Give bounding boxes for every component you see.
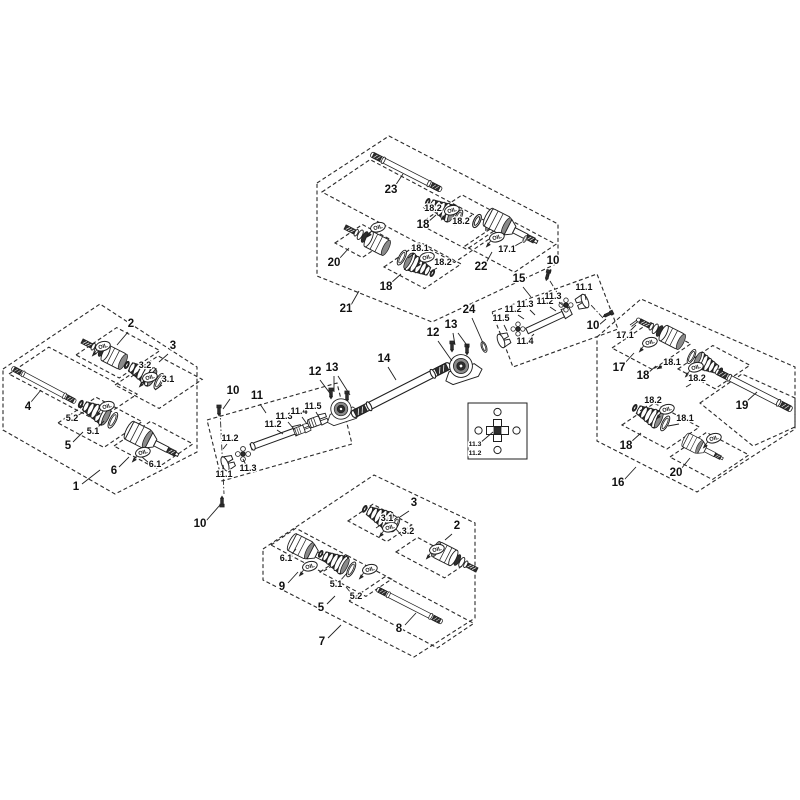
part-label-20-31: 20 xyxy=(670,467,683,479)
leader-line-6 xyxy=(119,457,129,467)
bolt-10-front-bottom xyxy=(220,496,224,507)
axle-shaft-4 xyxy=(11,365,78,404)
leader-line-14 xyxy=(388,367,396,380)
leader-line-11.2 xyxy=(223,444,227,449)
snap-ring-24 xyxy=(480,341,489,353)
leader-line-18 xyxy=(631,433,641,442)
part-label-20-15: 20 xyxy=(328,257,341,269)
part-label-12-57: 12 xyxy=(427,327,440,339)
part-label-5.1-39: 5.1 xyxy=(330,579,343,589)
part-label-18.2-17: 18.2 xyxy=(434,257,452,267)
part-label-17.1-22: 17.1 xyxy=(616,330,634,340)
part-label-6-5: 6 xyxy=(111,465,117,477)
bolt-10-rear-right xyxy=(602,310,614,318)
part-label-5.2-8: 5.2 xyxy=(66,413,79,423)
drivetrain-parts-diagram: OILOILOILOILOILOILOILOILOILOILOILOILOILO… xyxy=(0,0,800,800)
part-label-14-56: 14 xyxy=(378,353,391,365)
leader-line-11.5 xyxy=(504,325,507,331)
part-label-8-42: 8 xyxy=(396,623,403,635)
part-label-11.2-71: 11.2 xyxy=(469,450,482,457)
part-label-22-20: 22 xyxy=(475,261,488,273)
part-label-11.2-51: 11.2 xyxy=(221,433,238,443)
part-label-18.1-24: 18.1 xyxy=(663,357,681,367)
part-label-11.5-63: 11.5 xyxy=(492,313,509,323)
leader-line-11 xyxy=(260,404,266,413)
boot-ring-18-2 xyxy=(471,213,483,229)
leader-line-10 xyxy=(206,505,220,521)
part-label-13-55: 13 xyxy=(326,362,339,374)
leader-line-18.2 xyxy=(686,384,691,387)
part-label-10-45: 10 xyxy=(194,518,207,530)
part-label-9-38: 9 xyxy=(279,581,285,593)
part-label-3-2: 3 xyxy=(170,340,176,352)
part-label-18.2-12: 18.2 xyxy=(424,203,442,213)
part-label-3.1-7: 3.1 xyxy=(162,374,175,384)
part-label-3.2-35: 3.2 xyxy=(402,526,415,536)
bolt-13-b1 xyxy=(450,341,454,352)
part-label-3.1-34: 3.1 xyxy=(381,513,394,523)
oil-grease-icon-8: OIL xyxy=(637,336,659,352)
part-label-18-18: 18 xyxy=(380,281,393,293)
leader-line-18.1 xyxy=(668,424,679,426)
axle-shaft-19 xyxy=(714,368,793,413)
part-label-16-32: 16 xyxy=(612,477,625,489)
part-label-21-19: 21 xyxy=(340,303,353,315)
part-label-11-46: 11 xyxy=(251,390,264,402)
leader-line-5 xyxy=(327,596,335,604)
flange-yoke-11-5-rear xyxy=(496,331,512,349)
part-label-15-60: 15 xyxy=(513,273,526,285)
parts xyxy=(11,151,794,625)
leader-line-7 xyxy=(328,625,341,638)
part-label-11.1-69: 11.1 xyxy=(575,282,592,292)
part-label-5.2-40: 5.2 xyxy=(350,591,363,601)
part-label-18.2-28: 18.2 xyxy=(644,395,662,405)
part-label-18.2-26: 18.2 xyxy=(688,373,706,383)
leader-line-15 xyxy=(523,287,531,297)
part-label-11.5-50: 11.5 xyxy=(304,401,321,411)
part-label-12-54: 12 xyxy=(309,366,322,378)
leader-line-10 xyxy=(223,399,230,409)
leader-line-20 xyxy=(339,248,349,259)
assembly-axis-line-2 xyxy=(591,305,603,318)
part-label-24-59: 24 xyxy=(463,304,476,316)
part-label-23-11: 23 xyxy=(385,184,398,196)
part-label-5-4: 5 xyxy=(65,440,72,452)
parts-diagram-svg: OILOILOILOILOILOILOILOILOILOILOILOILOILO… xyxy=(0,0,800,800)
leader-line-11.2 xyxy=(550,307,556,311)
leader-line-18 xyxy=(391,274,401,283)
assembly-box-1 xyxy=(3,304,197,494)
part-label-19-27: 19 xyxy=(736,400,749,412)
part-label-11.3-68: 11.3 xyxy=(544,291,561,301)
leader-line-11.3 xyxy=(288,422,293,428)
part-label-2-1: 2 xyxy=(128,318,134,330)
leader-line-4 xyxy=(31,390,41,402)
part-label-10-44: 10 xyxy=(227,385,240,397)
part-label-18.1-16: 18.1 xyxy=(411,243,429,253)
leader-line-11.3 xyxy=(530,310,535,315)
part-label-6.1-10: 6.1 xyxy=(149,459,162,469)
group-boxes xyxy=(3,136,795,657)
shaft-lane-7 xyxy=(349,576,474,648)
part-label-10-61: 10 xyxy=(547,255,560,267)
part-label-18-25: 18 xyxy=(637,370,650,382)
propeller-shaft-14 xyxy=(350,361,452,420)
axle-shaft-8 xyxy=(376,586,444,625)
leader-line-16 xyxy=(624,467,636,480)
flange-yoke-11-1-rear xyxy=(574,293,590,311)
part-label-3.2-6: 3.2 xyxy=(139,360,152,370)
leader-line-2 xyxy=(117,332,128,345)
part-label-11.3-53: 11.3 xyxy=(239,463,256,473)
legend-journal-center xyxy=(494,427,501,434)
legend-cap-top xyxy=(494,408,501,415)
part-label-11.4-64: 11.4 xyxy=(516,336,533,346)
legend-cap-left xyxy=(475,427,482,434)
part-label-7-43: 7 xyxy=(319,636,325,648)
part-label-11.3-70: 11.3 xyxy=(469,441,482,448)
leader-line-8 xyxy=(405,613,416,625)
part-label-5-41: 5 xyxy=(318,602,325,614)
part-label-18.2-13: 18.2 xyxy=(452,216,470,226)
part-label-17.1-21: 17.1 xyxy=(498,244,516,254)
axle-shaft-23 xyxy=(369,151,443,193)
leader-line-2 xyxy=(445,534,452,540)
leader-line-10 xyxy=(599,319,606,325)
part-label-6.1-37: 6.1 xyxy=(280,553,293,563)
part-label-18.1-29: 18.1 xyxy=(676,413,694,423)
legend-cap-bottom xyxy=(494,446,501,453)
leader-line-3 xyxy=(400,511,409,517)
part-label-5.1-9: 5.1 xyxy=(87,426,100,436)
leader-line-13 xyxy=(338,376,350,395)
leader-line-13 xyxy=(458,333,469,348)
part-label-2-36: 2 xyxy=(454,520,460,532)
part-label-18-14: 18 xyxy=(417,219,430,231)
part-label-10-62: 10 xyxy=(587,320,600,332)
leader-lines xyxy=(31,174,757,638)
oil-grease-icon-14: OIL xyxy=(297,560,319,576)
leader-line-9 xyxy=(288,572,298,583)
oil-grease-icon-15: OIL xyxy=(357,563,379,579)
part-label-17-23: 17 xyxy=(613,362,626,374)
leader-line-24 xyxy=(472,318,483,343)
leader-line-11.2 xyxy=(518,315,524,319)
part-label-11.1-52: 11.1 xyxy=(215,469,232,479)
legend-cap-right xyxy=(513,427,520,434)
part-label-4-3: 4 xyxy=(25,401,32,413)
ujoint-cross-rear-left xyxy=(511,322,525,336)
part-label-13-58: 13 xyxy=(445,319,458,331)
part-label-18-30: 18 xyxy=(620,440,633,452)
part-label-3-33: 3 xyxy=(411,497,417,509)
leader-line-18.1 xyxy=(657,366,662,369)
part-label-1-0: 1 xyxy=(73,481,80,493)
leader-line-11.4 xyxy=(302,417,307,424)
part-label-11.3-66: 11.3 xyxy=(516,299,533,309)
